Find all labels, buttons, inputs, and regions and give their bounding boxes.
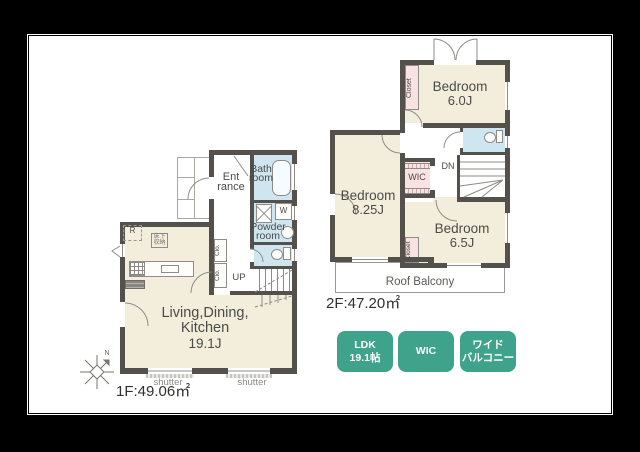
bedroom3-door-patch — [433, 197, 457, 202]
window — [505, 136, 510, 148]
powder-label-2: room — [244, 231, 292, 242]
washer-label: W — [275, 207, 292, 216]
wall — [457, 197, 505, 202]
floor2-area-label: 2F:47.20㎡ — [326, 296, 466, 312]
window — [120, 244, 125, 257]
balcony-door-opening — [434, 60, 476, 65]
toilet-bowl-1f — [271, 249, 283, 260]
up-label: UP — [228, 273, 250, 283]
compass-north-label: N — [101, 350, 113, 358]
toilet2-door-opening — [460, 132, 463, 148]
bedroom2-size: 8.25J — [333, 203, 403, 217]
window — [292, 249, 297, 261]
entrance-porch — [177, 157, 210, 219]
window — [292, 206, 297, 220]
toilet-door-opening — [250, 249, 254, 262]
wall — [428, 257, 434, 268]
window — [505, 82, 510, 110]
bedroom1-size: 6.0J — [425, 94, 495, 108]
floor-storage-label-2: 収納 — [151, 240, 168, 246]
badge-wide-balcony-line1: ワイド — [472, 339, 504, 352]
window — [352, 257, 388, 262]
badge-ldk-line2: 19.1帖 — [350, 352, 381, 365]
bedroom1-door-opening — [405, 123, 423, 128]
wic-rail-top — [404, 163, 431, 169]
badge-ldk: LDK 19.1帖 — [337, 331, 393, 372]
wall — [230, 291, 297, 295]
badge-wic: WIC — [398, 331, 454, 372]
wall — [460, 152, 505, 155]
toilet-tank-1f — [283, 247, 291, 260]
wall — [250, 266, 292, 269]
badge-ldk-line1: LDK — [354, 339, 376, 352]
ldk-label-2: Kitchen — [130, 321, 280, 337]
bedroom3-size: 6.5J — [427, 236, 497, 250]
stairs-2f — [460, 155, 505, 197]
ldk-size: 19.1J — [130, 337, 280, 352]
floorplan-image: Living,Dining, Kitchen 19.1J Ent rance B… — [0, 0, 640, 452]
ldk-side-door-opening — [120, 302, 125, 327]
badge-wide-balcony-line2: バルコニー — [462, 352, 514, 365]
stove — [129, 262, 145, 276]
fridge-label: R — [123, 227, 142, 236]
toilet-bowl-2f — [484, 132, 496, 143]
roof-balcony-label: Roof Balcony — [355, 276, 485, 288]
window — [505, 213, 510, 243]
wall — [250, 242, 292, 245]
dn-label: DN — [438, 162, 458, 172]
wall — [400, 60, 405, 132]
badge-wide-balcony: ワイド バルコニー — [460, 331, 516, 372]
plan-canvas — [29, 36, 611, 413]
window — [447, 263, 481, 268]
bathroom-label-2: room — [240, 173, 282, 184]
toilet-tank-2f — [496, 130, 503, 143]
closet-bottom-label: Closet — [406, 239, 418, 262]
floor1-area-label: 1F:49.06㎡ — [116, 384, 256, 400]
stairs-1f — [254, 269, 292, 291]
wall — [330, 130, 405, 135]
kitchen-cupboard — [125, 280, 145, 289]
kitchen-sink — [161, 265, 179, 273]
closet-a-label: Clo. — [215, 240, 226, 261]
wic-label: WIC — [403, 173, 431, 183]
closet-b-label: Clo. — [215, 264, 226, 287]
window — [292, 164, 297, 190]
closet-top-label: Closet — [406, 68, 418, 108]
badge-wic-line1: WIC — [416, 345, 436, 358]
bedroom2-door-opening — [400, 133, 405, 153]
